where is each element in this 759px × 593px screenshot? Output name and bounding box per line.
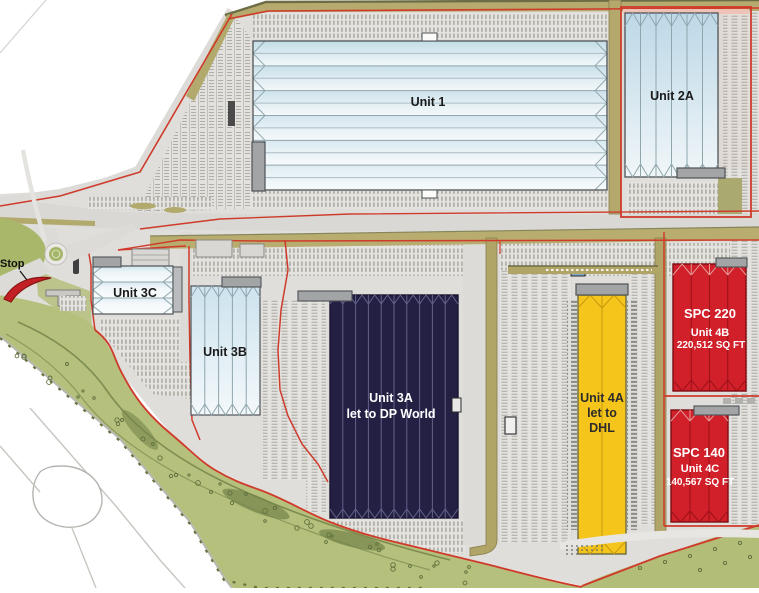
svg-text:Unit 4C: Unit 4C [681,463,720,475]
svg-text:let to: let to [587,406,617,420]
svg-text:140,567 SQ FT: 140,567 SQ FT [666,477,734,488]
svg-text:SPC 220: SPC 220 [684,306,736,321]
svg-text:220,512 SQ FT: 220,512 SQ FT [677,340,745,351]
svg-text:let to DP World: let to DP World [346,407,435,421]
svg-text:DHL: DHL [589,421,615,435]
svg-text:Stop: Stop [0,258,25,270]
svg-text:Unit 2A: Unit 2A [650,89,694,103]
svg-text:Unit 1: Unit 1 [411,95,446,109]
svg-text:Unit 3B: Unit 3B [203,345,247,359]
svg-text:Unit 3C: Unit 3C [113,286,157,300]
svg-text:Unit 3A: Unit 3A [369,391,413,405]
svg-text:SPC 140: SPC 140 [673,445,725,460]
svg-text:Unit 4A: Unit 4A [580,391,624,405]
svg-text:Unit 4B: Unit 4B [691,327,730,339]
